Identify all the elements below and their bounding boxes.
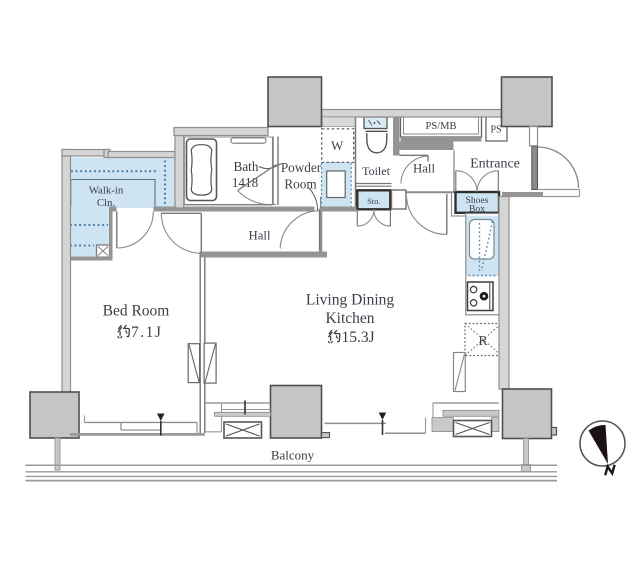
svg-text:Box: Box <box>469 203 485 214</box>
svg-text:15.3J: 15.3J <box>342 329 375 346</box>
svg-text:Sto.: Sto. <box>367 196 380 206</box>
svg-text:Bath: Bath <box>234 159 259 174</box>
svg-text:Hall: Hall <box>413 161 435 175</box>
svg-text:Living Dining: Living Dining <box>306 291 395 308</box>
svg-text:PS: PS <box>490 125 501 136</box>
svg-text:7.1J: 7.1J <box>131 324 162 341</box>
svg-text:Kitchen: Kitchen <box>325 310 374 327</box>
svg-text:Bed Room: Bed Room <box>103 303 170 320</box>
svg-text:PS/MB: PS/MB <box>426 121 457 132</box>
svg-text:W: W <box>331 138 344 153</box>
svg-text:Entrance: Entrance <box>470 157 520 172</box>
svg-text:Hall: Hall <box>248 229 270 243</box>
svg-text:Walk-in: Walk-in <box>89 185 124 197</box>
svg-text:Toilet: Toilet <box>362 164 390 178</box>
svg-text:Balcony: Balcony <box>271 448 315 463</box>
svg-text:1418: 1418 <box>232 175 259 190</box>
svg-text:R: R <box>478 333 487 348</box>
svg-text:Powder: Powder <box>281 160 322 175</box>
svg-text:Room: Room <box>284 177 317 192</box>
